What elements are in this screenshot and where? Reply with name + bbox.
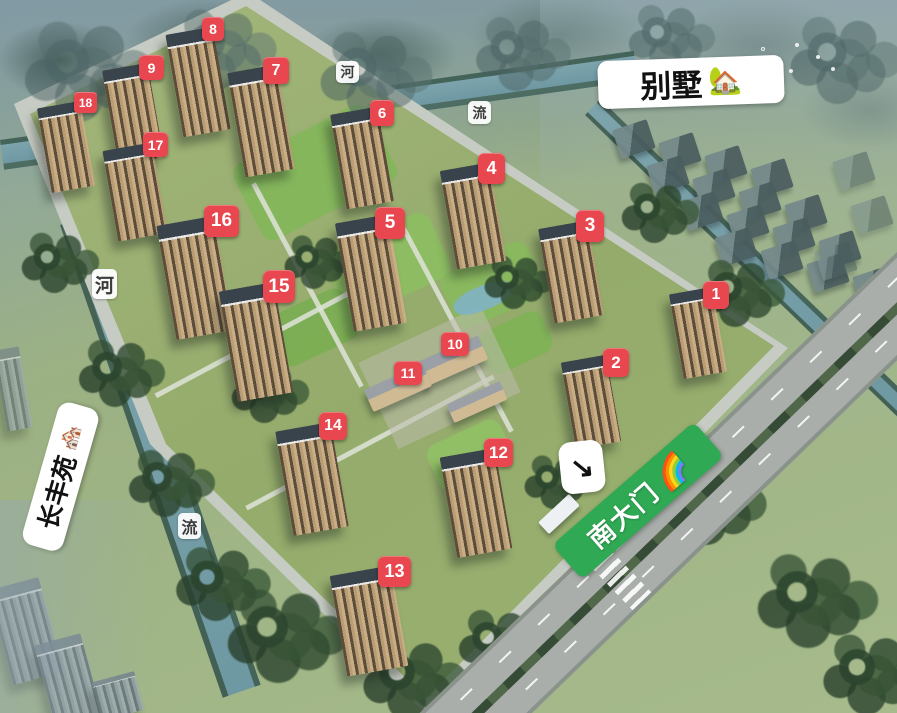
building-marker-4[interactable]: 4 <box>478 153 505 184</box>
building-marker-15[interactable]: 15 <box>263 270 295 303</box>
residential-tower <box>165 27 230 138</box>
building-marker-6[interactable]: 6 <box>370 100 394 126</box>
building-marker-5[interactable]: 5 <box>375 207 405 239</box>
building-marker-13[interactable]: 13 <box>378 556 411 587</box>
building-marker-9[interactable]: 9 <box>139 55 164 80</box>
residential-tower <box>37 101 95 193</box>
building-marker-1[interactable]: 1 <box>703 281 729 309</box>
building-marker-16[interactable]: 16 <box>204 205 239 237</box>
building-marker-8[interactable]: 8 <box>202 17 224 41</box>
villa-area-label: 别墅 🏡 <box>597 55 785 109</box>
waterway-label: 流 <box>178 513 201 539</box>
building-marker-18[interactable]: 18 <box>74 92 97 113</box>
waterway-label: 河 <box>336 61 359 83</box>
building-marker-11[interactable]: 11 <box>394 361 422 385</box>
down-right-arrow-icon: ↘ <box>569 449 596 484</box>
waterway-label: 河 <box>92 269 117 299</box>
houses-emoji-icon: 🏘️ <box>57 422 87 454</box>
community-masterplan-map: 河流河流 123456789101112131415161718 别墅 🏡 长丰… <box>0 0 897 713</box>
building-marker-12[interactable]: 12 <box>484 438 513 467</box>
building-marker-17[interactable]: 17 <box>143 132 168 157</box>
villa-label-text: 别墅 <box>639 59 703 106</box>
building-marker-2[interactable]: 2 <box>603 348 629 377</box>
building-marker-3[interactable]: 3 <box>576 210 604 242</box>
gate-direction-pill: ↘ <box>557 439 606 495</box>
building-marker-14[interactable]: 14 <box>319 412 347 440</box>
building-marker-10[interactable]: 10 <box>441 332 469 356</box>
waterway-label: 流 <box>468 101 491 124</box>
residential-towers <box>0 0 897 713</box>
house-garden-emoji-icon: 🏡 <box>708 64 743 97</box>
building-marker-7[interactable]: 7 <box>263 57 289 84</box>
